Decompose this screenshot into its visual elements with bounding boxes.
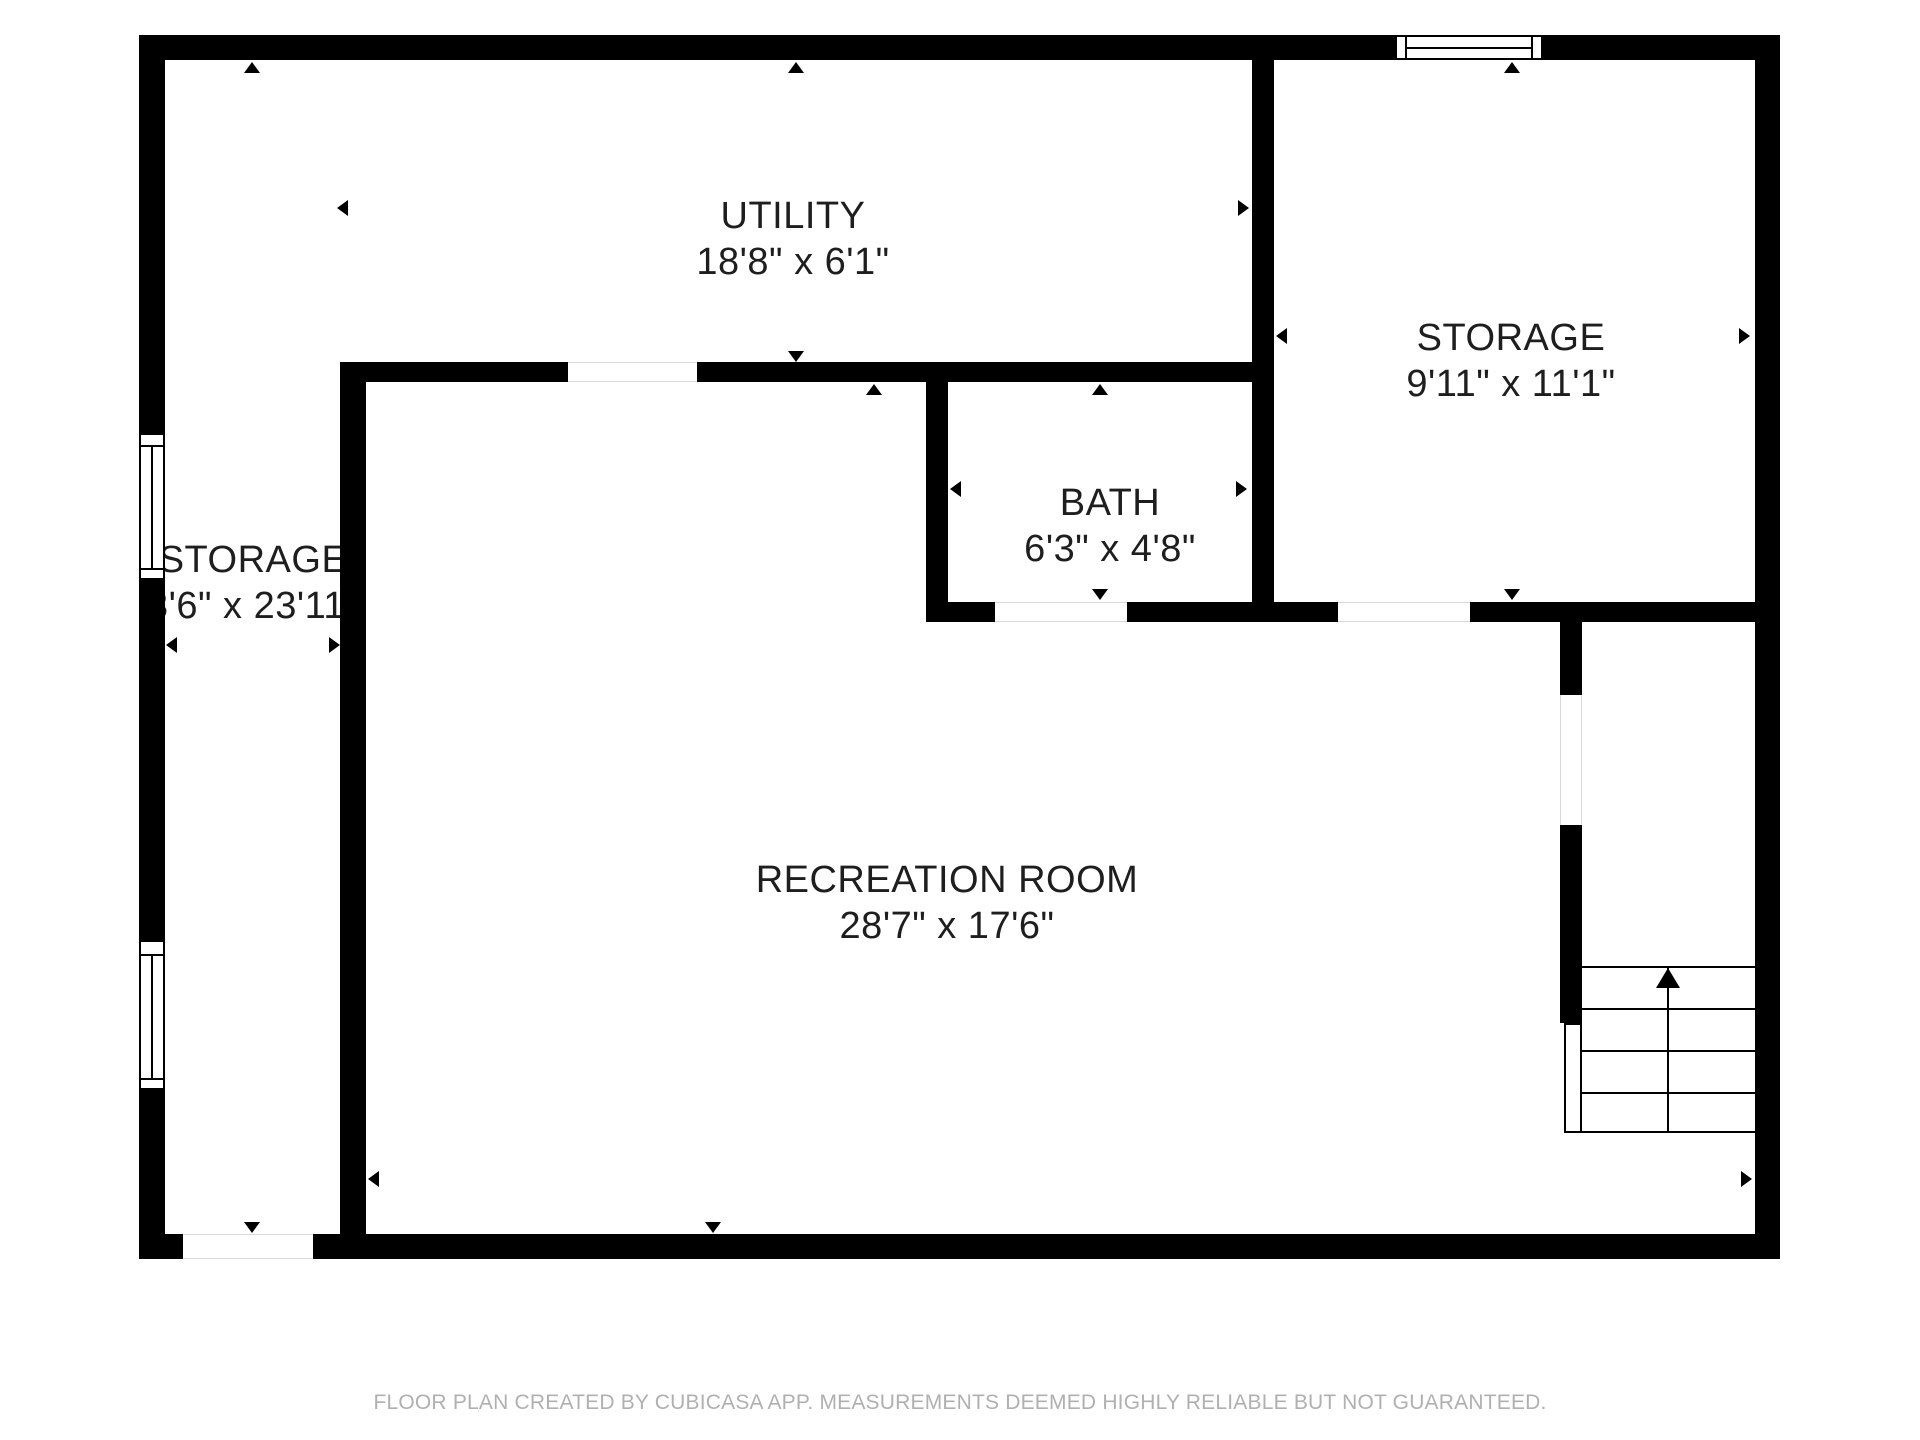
arrow-marker-icon xyxy=(1236,481,1247,497)
window-center-line xyxy=(151,954,153,1078)
room-dimensions: 9'11" x 11'1" xyxy=(1406,361,1615,407)
arrow-marker-icon xyxy=(337,200,348,216)
bath-room-label: BATH 6'3" x 4'8" xyxy=(1024,480,1196,572)
arrow-marker-icon xyxy=(244,1222,260,1233)
wall-storage-left-divider xyxy=(340,362,366,1234)
arrow-marker-icon xyxy=(1504,62,1520,73)
outer-wall-right xyxy=(1755,35,1780,1259)
door-opening-bath xyxy=(995,602,1127,622)
arrow-marker-icon xyxy=(1741,1171,1752,1187)
door-opening-exterior-bottom xyxy=(183,1234,313,1259)
arrow-marker-icon xyxy=(1276,328,1287,344)
arrow-marker-icon xyxy=(788,351,804,362)
room-dimensions: 3'6" x 23'11" xyxy=(147,583,359,629)
footer-disclaimer: FLOOR PLAN CREATED BY CUBICASA APP. MEAS… xyxy=(0,1391,1920,1415)
arrow-marker-icon xyxy=(866,384,882,395)
room-name: BATH xyxy=(1024,480,1196,526)
stair-up-arrow-icon xyxy=(1656,968,1680,988)
arrow-marker-icon xyxy=(1504,589,1520,600)
window-top xyxy=(1395,35,1543,60)
room-name: STORAGE xyxy=(1406,315,1615,361)
arrow-marker-icon xyxy=(788,62,804,73)
arrow-marker-icon xyxy=(329,637,340,653)
window-left-upper xyxy=(139,433,165,580)
door-opening-storage xyxy=(1338,602,1470,622)
arrow-marker-icon xyxy=(1739,328,1750,344)
room-dimensions: 28'7" x 17'6" xyxy=(756,903,1139,949)
wall-utility-storage-divider xyxy=(1252,60,1274,622)
arrow-marker-icon xyxy=(950,481,961,497)
storage-left-room-label: STORAGE 3'6" x 23'11" xyxy=(147,537,359,629)
door-opening-utility xyxy=(568,362,697,382)
window-center-line xyxy=(1405,47,1533,49)
floor-plan: UTILITY 18'8" x 6'1" STORAGE 3'6" x 23'1… xyxy=(0,0,1920,1440)
arrow-marker-icon xyxy=(705,1222,721,1233)
arrow-marker-icon xyxy=(1092,384,1108,395)
wall-utility-south xyxy=(340,362,1252,382)
recreation-room-label: RECREATION ROOM 28'7" x 17'6" xyxy=(756,857,1139,949)
utility-room-label: UTILITY 18'8" x 6'1" xyxy=(696,193,889,285)
stair-railing xyxy=(1564,1023,1582,1133)
arrow-marker-icon xyxy=(1092,589,1108,600)
window-center-line xyxy=(151,445,153,570)
room-name: RECREATION ROOM xyxy=(756,857,1139,903)
window-left-lower xyxy=(139,940,165,1090)
room-dimensions: 18'8" x 6'1" xyxy=(696,239,889,285)
arrow-marker-icon xyxy=(368,1171,379,1187)
room-name: STORAGE xyxy=(147,537,359,583)
arrow-marker-icon xyxy=(244,62,260,73)
outer-wall-bottom xyxy=(139,1234,1780,1259)
room-name: UTILITY xyxy=(696,193,889,239)
door-opening-stair-hall xyxy=(1560,695,1582,825)
room-dimensions: 6'3" x 4'8" xyxy=(1024,526,1196,572)
arrow-marker-icon xyxy=(166,637,177,653)
staircase xyxy=(1582,966,1755,1133)
window-cap-line xyxy=(141,1078,163,1080)
storage-right-room-label: STORAGE 9'11" x 11'1" xyxy=(1406,315,1615,407)
stair-center-line xyxy=(1667,966,1669,1133)
wall-bath-west xyxy=(926,362,948,622)
arrow-marker-icon xyxy=(1238,200,1249,216)
